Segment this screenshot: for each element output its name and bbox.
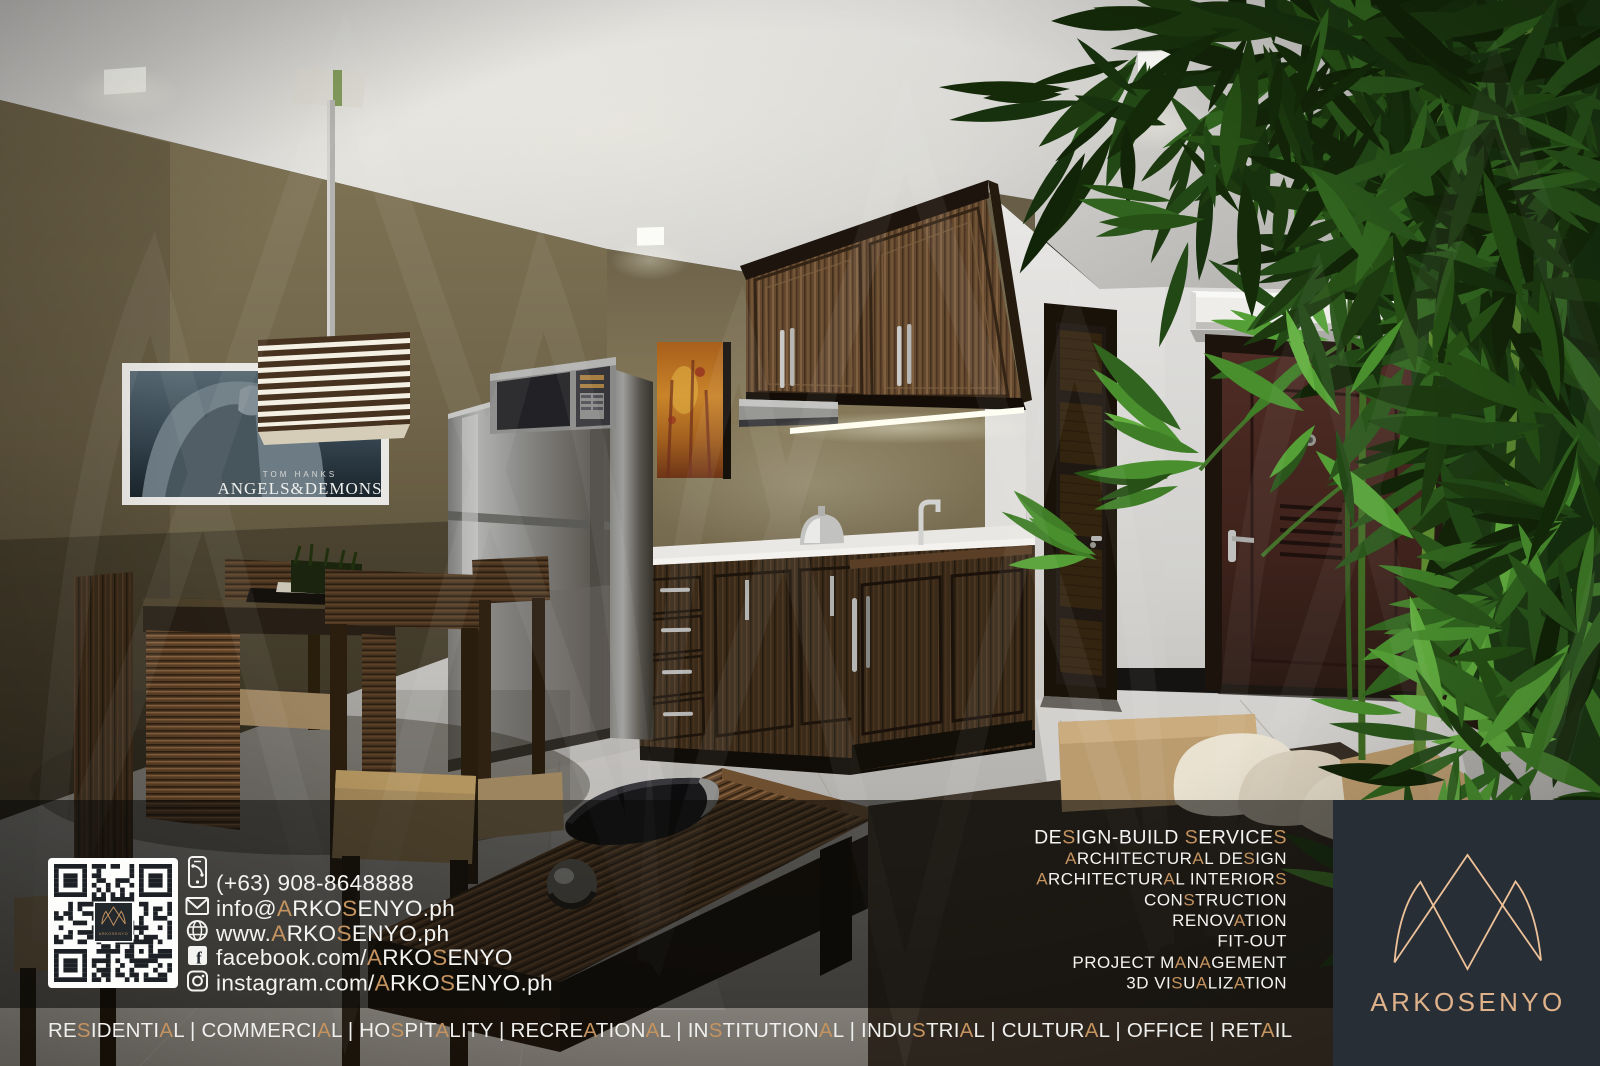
svg-text:DESIGN-BUILD SERVICES: DESIGN-BUILD SERVICES <box>1034 827 1287 849</box>
svg-text:facebook.com/ARKOSENYO: facebook.com/ARKOSENYO <box>216 945 513 970</box>
svg-text:RESIDENTIAL | COMMERCIAL | HOS: RESIDENTIAL | COMMERCIAL | HOSPITALITY |… <box>48 1019 1292 1042</box>
svg-text:CONSTRUCTION: CONSTRUCTION <box>1144 890 1287 909</box>
svg-text:ARKOSENYO: ARKOSENYO <box>1370 987 1565 1017</box>
svg-text:info@ARKOSENYO.ph: info@ARKOSENYO.ph <box>216 896 455 921</box>
svg-text:(+63) 908-8648888: (+63) 908-8648888 <box>216 871 414 896</box>
svg-text:FIT-OUT: FIT-OUT <box>1217 932 1287 951</box>
svg-text:ARCHITECTURAL DESIGN: ARCHITECTURAL DESIGN <box>1065 849 1287 868</box>
svg-text:3D VISUALIZATION: 3D VISUALIZATION <box>1126 974 1287 993</box>
svg-text:RENOVATION: RENOVATION <box>1172 911 1287 930</box>
svg-text:ARCHITECTURAL INTERIORS: ARCHITECTURAL INTERIORS <box>1036 870 1287 889</box>
svg-text:ARKOSENYO: ARKOSENYO <box>99 932 128 936</box>
svg-text:PROJECT MANAGEMENT: PROJECT MANAGEMENT <box>1072 953 1287 972</box>
svg-text:www.ARKOSENYO.ph: www.ARKOSENYO.ph <box>215 921 449 946</box>
svg-text:instagram.com/ARKOSENYO.ph: instagram.com/ARKOSENYO.ph <box>216 971 553 996</box>
svg-text:f: f <box>196 949 202 968</box>
